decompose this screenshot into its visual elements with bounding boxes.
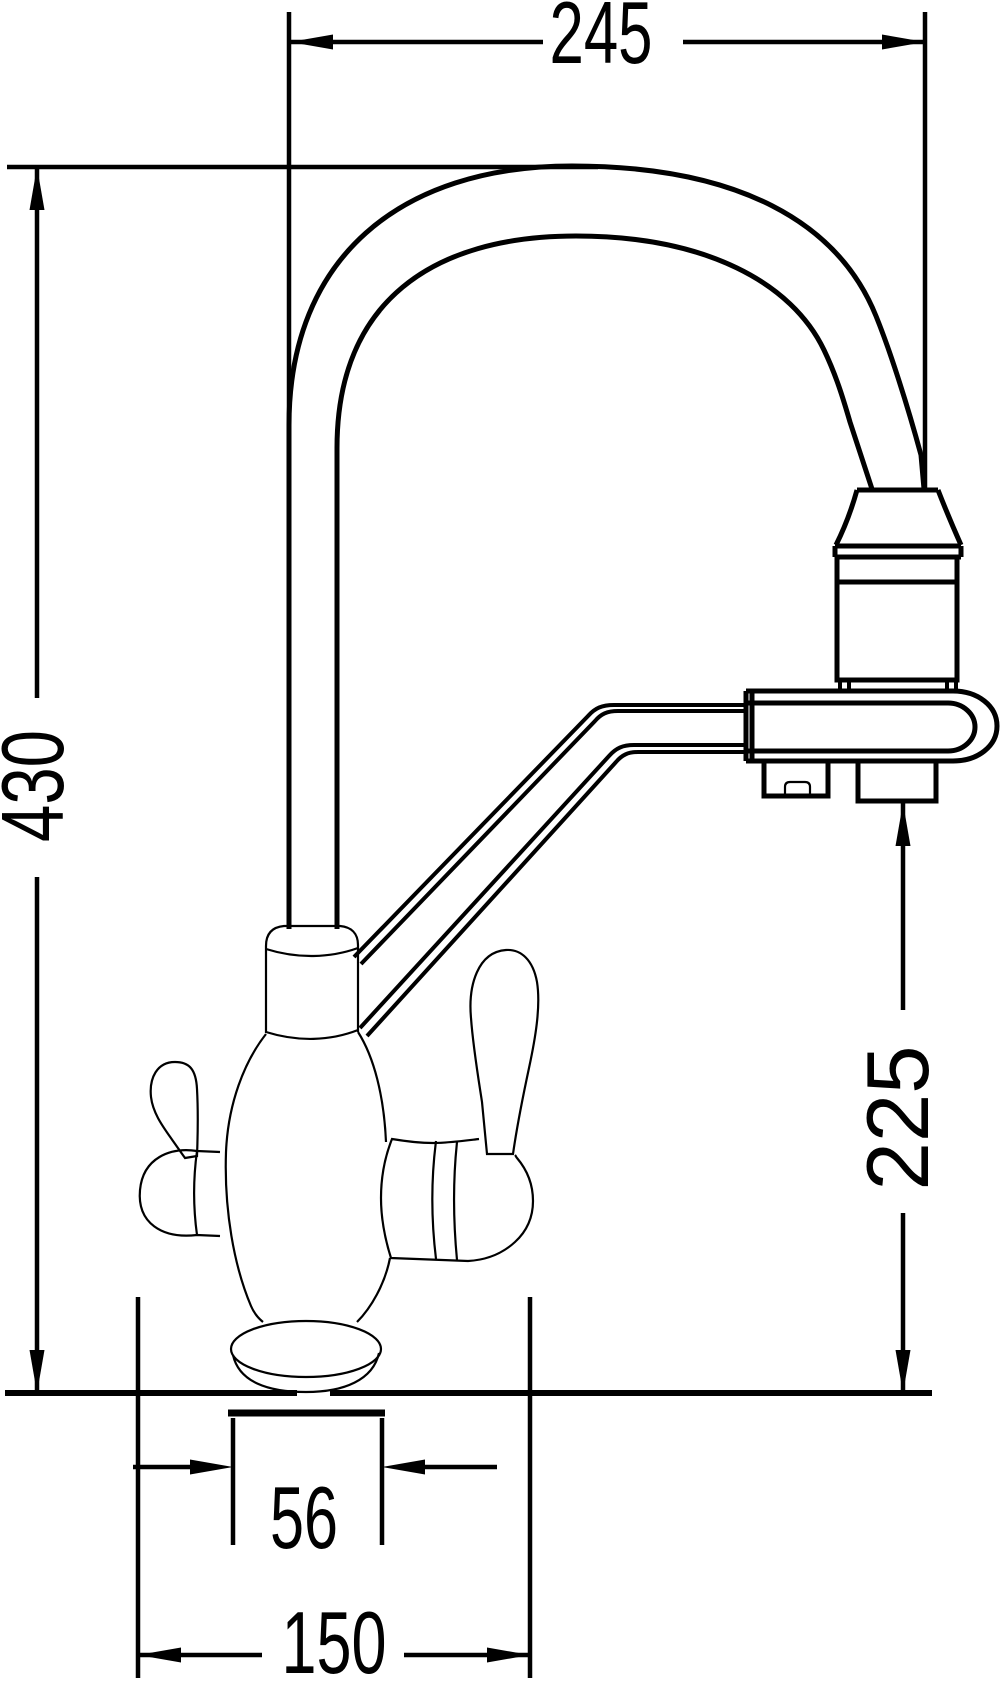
right-valve-joint-line-1 bbox=[432, 1141, 436, 1259]
dim-label-245: 245 bbox=[550, 0, 653, 82]
shoulder-joint-curve bbox=[266, 948, 358, 956]
left-valve-cap bbox=[140, 1150, 220, 1236]
dim-label-225: 225 bbox=[848, 1046, 947, 1191]
faucet-dimension-drawing: 245 430 225 56 bbox=[0, 0, 1000, 1682]
under-fitting-right bbox=[858, 761, 936, 801]
upper-pipe-rail-1 bbox=[354, 705, 745, 957]
arrow-up-icon bbox=[30, 167, 45, 210]
body-left-edge bbox=[226, 1034, 266, 1322]
base-upper-ring bbox=[231, 1321, 381, 1377]
arrow-down-icon bbox=[30, 1350, 45, 1393]
base-flange bbox=[231, 1321, 381, 1392]
arrow-left-icon bbox=[382, 1460, 425, 1475]
outlet-arm bbox=[746, 691, 997, 801]
dim-label-56: 56 bbox=[270, 1468, 338, 1567]
arrow-up-icon bbox=[896, 803, 911, 846]
right-valve-body bbox=[381, 1139, 533, 1261]
arrow-right-icon bbox=[487, 1648, 530, 1663]
lower-pipe-rail-1 bbox=[360, 745, 745, 1028]
faucet-technical-drawing-page: 245 430 225 56 bbox=[0, 0, 1000, 1682]
spout-outer-curve bbox=[289, 166, 924, 929]
connection-pipes bbox=[354, 705, 745, 1036]
base-lower-rim bbox=[233, 1353, 379, 1392]
dim-label-150: 150 bbox=[282, 1593, 387, 1682]
arrow-right-icon bbox=[882, 35, 925, 50]
left-valve-joint-line bbox=[194, 1151, 197, 1235]
cone-left-side bbox=[836, 490, 857, 545]
under-fitting-left bbox=[764, 761, 828, 796]
faucet-body bbox=[226, 926, 390, 1322]
arrow-left-icon bbox=[138, 1648, 181, 1663]
left-handle bbox=[140, 1062, 220, 1236]
spout-inner-curve bbox=[337, 236, 872, 929]
shoulder-cap bbox=[266, 926, 358, 946]
dim-label-430: 430 bbox=[0, 730, 82, 842]
body-right-edge-upper bbox=[358, 1032, 386, 1142]
gooseneck-spout bbox=[289, 166, 924, 929]
arm-inner-outline bbox=[746, 703, 975, 751]
arrow-left-icon bbox=[290, 35, 333, 50]
arrow-down-icon bbox=[896, 1350, 911, 1393]
dimension-base-diameter: 56 bbox=[133, 1413, 497, 1567]
neck-body-joint-curve bbox=[266, 1030, 358, 1039]
lower-pipe-rail-2 bbox=[367, 752, 745, 1036]
cone-right-side bbox=[938, 490, 961, 545]
right-valve-joint-line-2 bbox=[454, 1142, 457, 1260]
arrow-right-icon bbox=[190, 1460, 233, 1475]
dimension-outlet-height: 225 bbox=[848, 803, 947, 1393]
filter-head bbox=[835, 490, 961, 691]
left-lever bbox=[151, 1062, 198, 1158]
right-lever bbox=[470, 950, 538, 1154]
cartridge-body bbox=[837, 557, 957, 680]
upper-pipe-rail-2 bbox=[361, 711, 745, 964]
body-right-edge-lower bbox=[357, 1258, 390, 1322]
